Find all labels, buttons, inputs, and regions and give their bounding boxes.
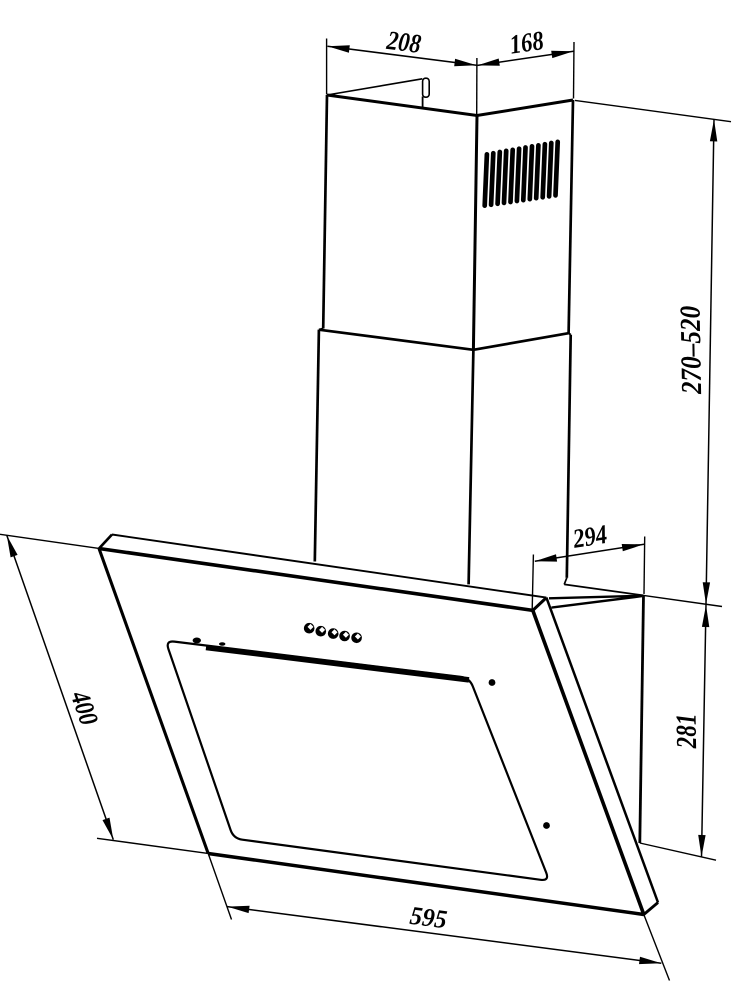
- svg-text:168: 168: [508, 26, 546, 60]
- svg-text:294: 294: [570, 520, 609, 554]
- svg-text:595: 595: [408, 901, 449, 934]
- svg-text:208: 208: [384, 26, 423, 59]
- svg-text:281: 281: [670, 713, 703, 749]
- svg-text:270–520: 270–520: [674, 305, 708, 395]
